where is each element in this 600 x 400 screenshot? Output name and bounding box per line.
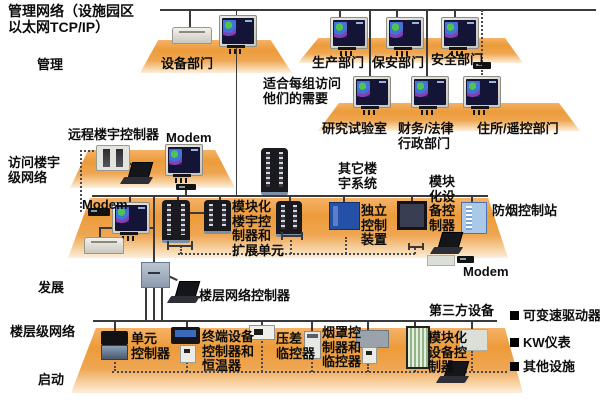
remote-building-controller-label: 远程楼宇控制器: [68, 128, 159, 143]
laptop: [169, 281, 201, 303]
expansion-drop: [471, 351, 473, 371]
printer: [172, 27, 212, 44]
expansion-bus-line: [178, 253, 415, 255]
workstation-monitor: [353, 76, 391, 108]
modular-building-controller-label: 模块化楼宇控制器和扩展单元: [232, 200, 284, 258]
drop-line: [311, 321, 313, 331]
expansion-connector: [167, 241, 193, 250]
production-dept-label: 生产部门: [312, 56, 364, 71]
workstation-monitor: [441, 17, 479, 49]
workstation-monitor: [219, 15, 257, 47]
floor-network-controller-label: 楼层网络控制器: [199, 289, 290, 304]
expansion-drop: [290, 240, 292, 254]
stage-label-management: 管理: [37, 58, 63, 73]
workstation-monitor: [411, 76, 449, 108]
expansion-connector: [408, 243, 424, 250]
modular-device-controller-label: 模块化设备控制器: [428, 331, 467, 375]
unit-controller-label: 单元控制器: [131, 332, 170, 361]
network-architecture-diagram: 管理网络（设施园区以太网TCP/IP） 管理 访问楼宇级网络 发展 楼层级网络 …: [0, 0, 600, 400]
standalone-control-device: [329, 202, 360, 230]
unit-controller-screen: [101, 345, 128, 360]
monitor-screen: [444, 20, 476, 46]
equipment-dept-label: 设备部门: [161, 57, 213, 72]
modem-base-unit: [427, 255, 455, 266]
research-lab-label: 研究试验室: [322, 122, 387, 137]
stage-label-startup: 启动: [38, 373, 64, 388]
stage-label-access: 访问楼宇级网络: [8, 156, 60, 185]
modem-device: [176, 184, 196, 190]
laptop: [122, 162, 154, 184]
security-dept-label: 保安部门: [372, 56, 424, 71]
fit-note-label: 适合每组访问他们的需要: [263, 77, 341, 106]
laptop: [432, 232, 464, 254]
smoke-control-station-label: 防烟控制站: [492, 204, 557, 219]
stage-label-floor-network: 楼层级网络: [10, 325, 75, 340]
third-party-label: 第三方设备: [429, 304, 494, 319]
expansion-connector: [281, 232, 303, 240]
floor-network-bus: [93, 320, 497, 322]
floor-network-controller-device: [141, 262, 170, 288]
workstation-monitor: [386, 17, 424, 49]
management-network-bus: [160, 9, 596, 11]
monitor-screen: [168, 147, 200, 173]
hood-controller-label: 烟罩控制器和临控器: [322, 326, 361, 370]
modem-device: [457, 256, 474, 263]
monitor-screen: [414, 79, 446, 105]
monitor-screen: [222, 18, 254, 44]
floor-controller-riser: [153, 196, 155, 263]
legend-item-other-facilities: 其他设施: [510, 356, 575, 375]
printer: [84, 237, 124, 254]
modem-label: Modem: [82, 198, 128, 213]
unit-controller-device: [101, 331, 128, 345]
monitor-screen: [466, 79, 498, 105]
monitor-screen: [356, 79, 388, 105]
smoke-control-station-device: [461, 202, 487, 234]
building-controller-cabinet: [261, 148, 288, 195]
safety-dept-label: 安全部门: [431, 53, 483, 68]
terminal-controller-label: 终端设备控制器和恒温器: [202, 330, 254, 374]
expansion-drop: [186, 362, 188, 372]
legend-square-icon: [510, 338, 519, 347]
legend-square-icon: [510, 362, 519, 371]
expansion-drop: [261, 341, 263, 372]
modular-equipment-controller-device: [397, 201, 427, 230]
page-title: 管理网络（设施园区以太网TCP/IP）: [8, 4, 134, 35]
building-controller-cabinet: [162, 200, 190, 243]
pressure-monitor-label: 压差临控器: [276, 332, 315, 361]
expansion-drop: [367, 364, 369, 372]
drop-line: [367, 321, 369, 330]
residence-remote-label: 住所/遥控部门: [477, 122, 559, 137]
expansion-drop: [345, 237, 347, 254]
controller-leg: [161, 286, 163, 321]
modem-label: Modem: [166, 131, 212, 146]
monitor-stand: [225, 45, 247, 54]
monitor-stand: [469, 106, 491, 115]
standalone-control-label: 独立控制装置: [361, 204, 387, 248]
workstation-monitor: [165, 144, 203, 176]
drop-line: [189, 10, 191, 28]
terminal-controller-device: [171, 327, 200, 344]
thermostat-device: [180, 345, 196, 363]
drop-line: [426, 10, 428, 77]
drop-line: [369, 10, 371, 77]
drop-line: [185, 190, 187, 196]
controller-leg: [145, 286, 147, 321]
stage-label-development: 发展: [38, 281, 64, 296]
modular-equipment-controller-label: 模块化设备控制器: [429, 175, 455, 233]
monitor-screen: [389, 20, 421, 46]
controller-leg: [153, 286, 155, 321]
finance-legal-label: 财务/法律行政部门: [398, 122, 454, 151]
building-controller-cabinet: [204, 200, 231, 234]
workstation-monitor: [463, 76, 501, 108]
monitor-stand: [171, 174, 193, 183]
modular-device-controller-cabinet: [406, 326, 430, 369]
legend-square-icon: [510, 311, 519, 320]
modem-label: Modem: [463, 265, 509, 280]
hood-monitor-device: [362, 347, 377, 364]
monitor-stand: [417, 106, 439, 115]
other-building-systems-label: 其它楼宇系统: [338, 162, 377, 191]
workstation-monitor: [330, 17, 368, 49]
monitor-stand: [359, 106, 381, 115]
legend-item-variable-speed-drive: 可变速驱动器: [510, 305, 600, 324]
legend-item-kw-meter: KW仪表: [510, 332, 571, 351]
monitor-screen: [333, 20, 365, 46]
